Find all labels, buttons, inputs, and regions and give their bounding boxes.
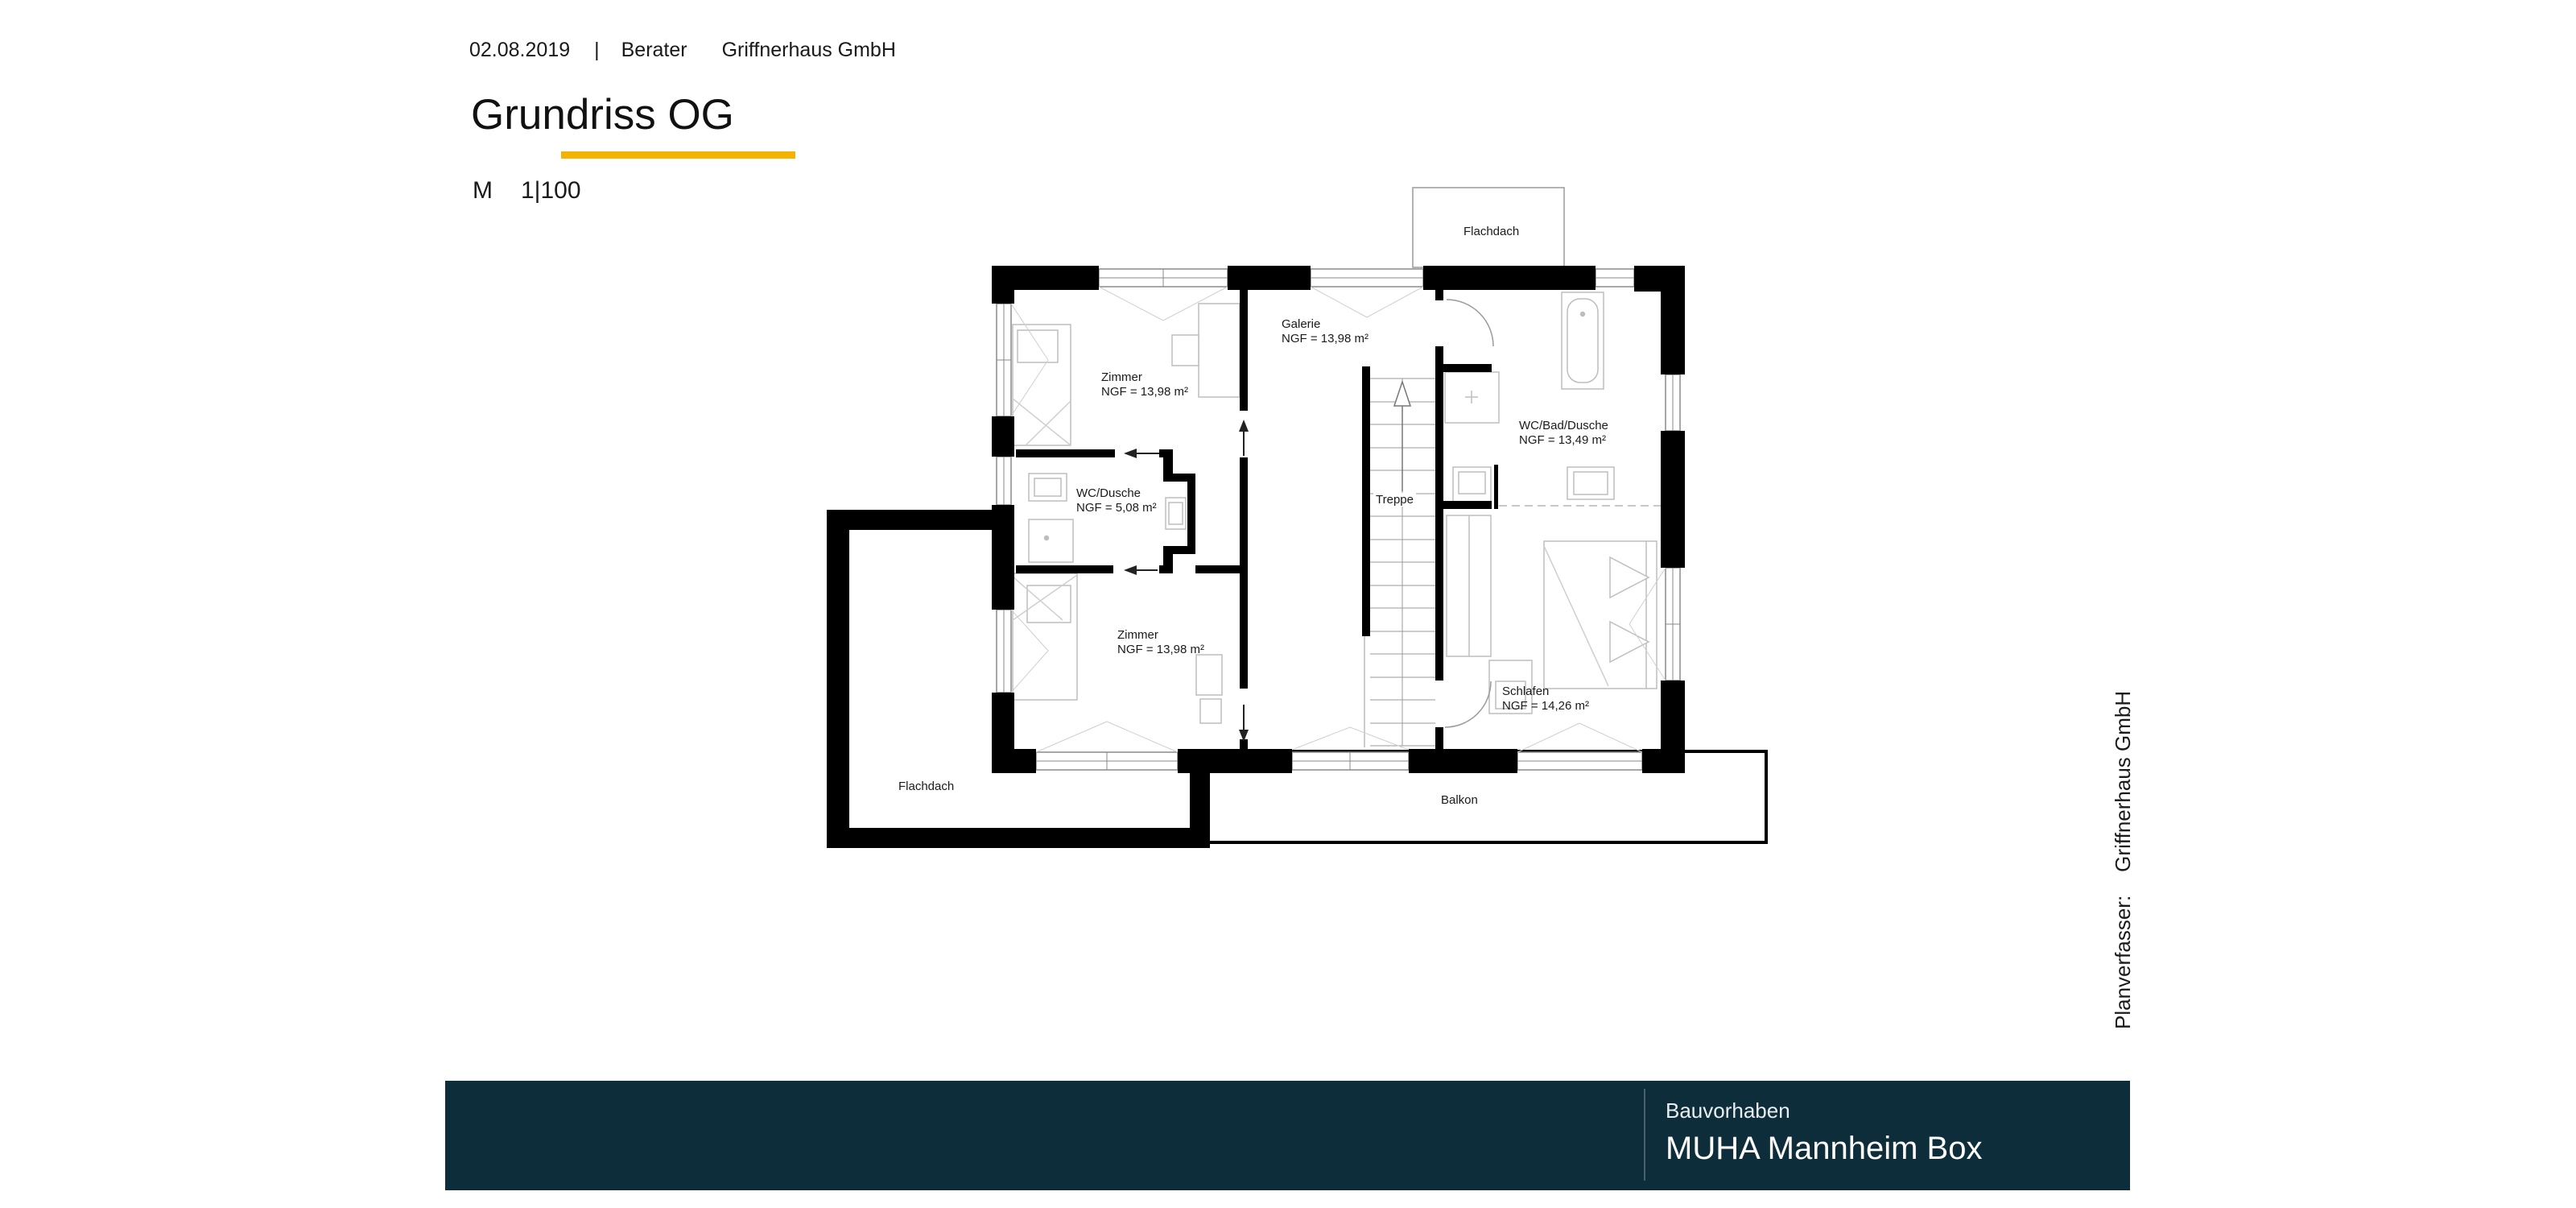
desk	[1199, 304, 1240, 397]
plan-sheet: 02.08.2019 | Berater Griffnerhaus GmbH G…	[0, 0, 2576, 1208]
author-label: Planverfasser:	[2111, 896, 2136, 1029]
direction-arrows	[1124, 420, 1249, 742]
stairs	[1364, 379, 1435, 747]
interior-walls	[1016, 290, 1498, 749]
doors	[1445, 300, 1493, 727]
room-label-schlafen: Schlafen NGF = 14,26 m²	[1502, 685, 1589, 714]
window	[997, 457, 1011, 505]
label-flachdach-top: Flachdach	[1463, 225, 1519, 238]
floor-plan-drawing	[0, 0, 2576, 1208]
room-label-galerie: Galerie NGF = 13,98 m²	[1282, 317, 1368, 346]
stair-up-arrow	[1394, 382, 1410, 406]
door-swing-galerie	[1447, 300, 1493, 346]
shower	[1029, 519, 1073, 562]
pillow	[1027, 585, 1071, 623]
project-label: Bauvorhaben	[1666, 1098, 1790, 1123]
window	[1036, 722, 1178, 770]
author-name: Griffnerhaus GmbH	[2111, 691, 2136, 872]
double-bed	[1544, 541, 1657, 689]
window	[1596, 269, 1634, 287]
window	[1666, 374, 1680, 431]
chair	[1172, 335, 1199, 366]
plan-author-vertical: Planverfasser: Griffnerhaus GmbH	[2111, 675, 2135, 1029]
window	[1311, 269, 1423, 317]
chair	[1200, 699, 1221, 723]
balcony-door	[1292, 727, 1409, 770]
stair-rail	[1362, 366, 1370, 636]
room-label-zimmer-top: Zimmer NGF = 13,98 m²	[1101, 370, 1188, 399]
label-balkon: Balkon	[1441, 793, 1478, 807]
project-name: MUHA Mannheim Box	[1666, 1131, 1982, 1167]
footer-divider	[1644, 1089, 1645, 1181]
pillow	[1018, 330, 1058, 362]
room-label-zimmer-bottom: Zimmer NGF = 13,98 m²	[1117, 628, 1204, 657]
room-label-wc-dusche: WC/Dusche NGF = 5,08 m²	[1076, 486, 1157, 515]
label-flachdach-left: Flachdach	[898, 780, 954, 793]
window	[1517, 723, 1642, 770]
room-label-treppe: Treppe	[1373, 493, 1416, 507]
door-swing-schlafen	[1445, 681, 1491, 727]
desk	[1196, 655, 1222, 695]
room-label-wc-bad-dusche: WC/Bad/Dusche NGF = 13,49 m²	[1519, 419, 1608, 448]
